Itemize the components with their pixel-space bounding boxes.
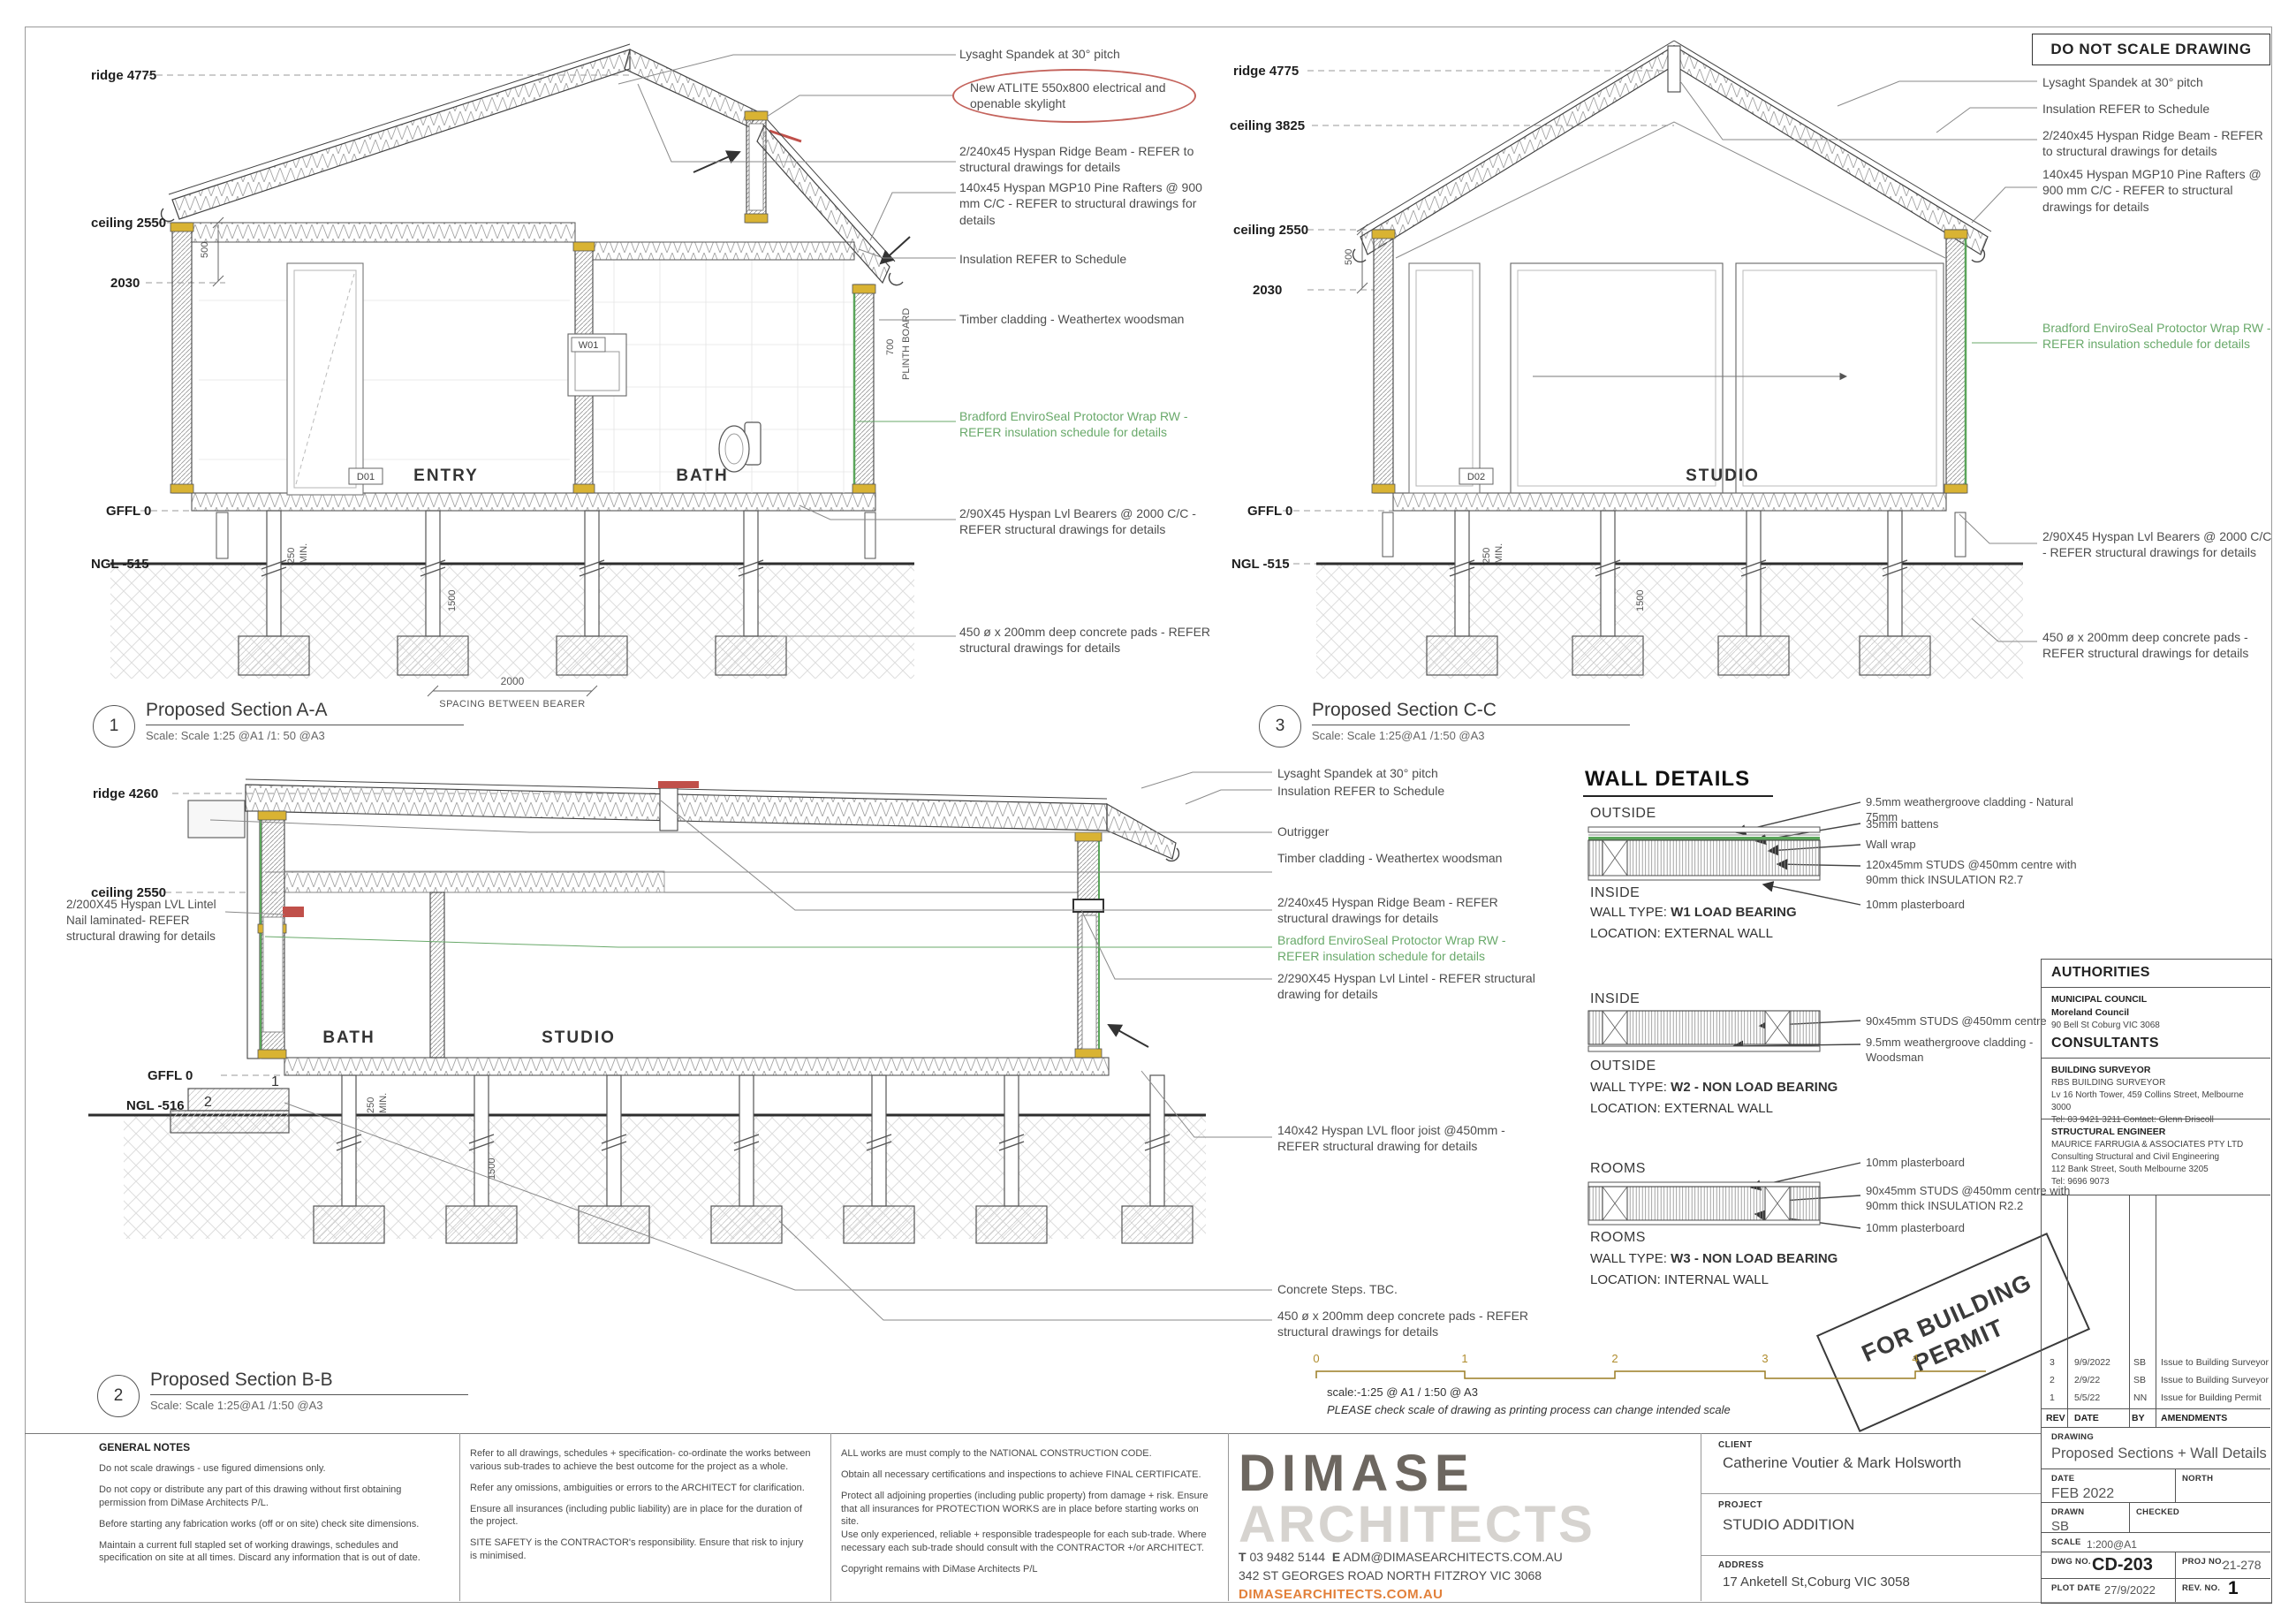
wall-type-w2: WALL TYPE: W2 - NON LOAD BEARING [1590,1080,1838,1095]
building-surveyor: BUILDING SURVEYOR RBS BUILDING SURVEYOR … [2051,1064,2262,1127]
wall-w1-diagram [1588,825,1829,882]
structural-engineer: STRUCTURAL ENGINEER MAURICE FARRUGIA & A… [2051,1126,2262,1188]
brand-contact: T 03 9482 5144 E ADM@DIMASEARCHITECTS.CO… [1239,1548,1563,1605]
section-b-title: 2 Proposed Section B-BScale: Scale 1:25@… [97,1370,468,1417]
client-name: Catherine Voutier & Mark Holsworth [1723,1454,1961,1472]
wall-w3-diagram [1588,1180,1829,1226]
callout-note: Insulation REFER to Schedule [959,251,1224,267]
section-number: 1 [93,705,135,747]
dwg-number: CD-203 [2092,1555,2153,1575]
brand-website: DIMASEARCHITECTS.COM.AU [1239,1585,1563,1605]
general-notes-col3: ALL works are must comply to the NATIONA… [841,1447,1212,1584]
wall-type-w1: WALL TYPE: W1 LOAD BEARING [1590,905,1797,920]
drawing-title: Proposed Sections + Wall Details [2051,1446,2267,1462]
wall-w2-diagram [1588,1009,1829,1053]
wall-type-w3: WALL TYPE: W3 - NON LOAD BEARING [1590,1251,1838,1266]
sheet-scale: 1:200@A1 [2087,1538,2137,1551]
graphic-scale-bar: 0 1 2 3 4 [1306,1350,2039,1385]
section-c-title: 3 Proposed Section C-CScale: Scale 1:25@… [1259,700,1630,747]
plot-date: 27/9/2022 [2104,1583,2156,1597]
drawing-date: FEB 2022 [2051,1486,2114,1502]
section-a-title: 1 Proposed Section A-AScale: Scale 1:25 … [93,700,464,747]
callout-note: 450 ø x 200mm deep concrete pads - REFER… [1277,1308,1542,1340]
rev-row: 3 [2050,1357,2055,1368]
callout-note: 140x45 Hyspan MGP10 Pine Rafters @ 900 m… [959,179,1224,228]
rev-row: 1 [2050,1393,2055,1403]
callout-note: Concrete Steps. TBC. [1277,1281,1542,1297]
callout-note: 450 ø x 200mm deep concrete pads - REFER… [959,624,1224,656]
logo-dimase: DIMASE [1239,1444,1475,1503]
consultants-heading: CONSULTANTS [2051,1036,2159,1051]
callout-note: Timber cladding - Weathertex woodsman [1277,850,1542,866]
municipal-council: MUNICIPAL COUNCIL Moreland Council 90 Be… [2051,993,2262,1032]
callout-note: 140x45 Hyspan MGP10 Pine Rafters @ 900 m… [2042,166,2272,215]
callout-note-green: Bradford EnviroSeal Protoctor Wrap RW - … [1277,932,1542,965]
proj-number: 21-278 [2223,1558,2262,1572]
svg-text:0: 0 [1313,1352,1319,1365]
skylight-revision-cloud: New ATLITE 550x800 electrical and openab… [952,69,1196,123]
callout-note: 2/290X45 Hyspan Lvl Lintel - REFER struc… [1277,970,1542,1003]
callout-note: Lysaght Spandek at 30° pitch [1277,765,1542,781]
callout-note: 2/240x45 Hyspan Ridge Beam - REFER struc… [1277,894,1542,927]
callout-note-green: Bradford EnviroSeal Protoctor Wrap RW - … [2042,320,2272,353]
rev-row: 2 [2050,1375,2055,1385]
section-number: 3 [1259,705,1301,747]
callout-note: 450 ø x 200mm deep concrete pads - REFER… [2042,629,2272,662]
callout-note-green: Bradford EnviroSeal Protoctor Wrap RW - … [959,408,1224,441]
svg-text:4: 4 [1912,1352,1918,1365]
logo-architects: ARCHITECTS [1239,1495,1595,1554]
section-number: 2 [97,1375,140,1417]
callout-note: 2/90X45 Hyspan Lvl Bearers @ 2000 C/C - … [959,505,1224,538]
callout-note: Timber cladding - Weathertex woodsman [959,311,1224,327]
svg-text:1: 1 [1461,1352,1467,1365]
wall-details-title: WALL DETAILS [1583,767,1773,797]
svg-text:3: 3 [1762,1352,1768,1365]
callout-note: Outrigger [1277,823,1542,839]
callout-note: Insulation REFER to Schedule [2042,101,2272,117]
callout-note: 2/90X45 Hyspan Lvl Bearers @ 2000 C/C - … [2042,528,2272,561]
scale-warning: PLEASE check scale of drawing as printin… [1327,1403,1731,1416]
callout-note: 2/240x45 Hyspan Ridge Beam - REFER to st… [959,143,1224,176]
project-address: 17 Anketell St,Coburg VIC 3058 [1723,1575,1910,1590]
callout-note: Insulation REFER to Schedule [1277,783,1542,799]
general-notes-col2: Refer to all drawings, schedules + speci… [470,1447,813,1571]
authorities-heading: AUTHORITIES [2051,965,2150,981]
rev-number: 1 [2228,1578,2239,1599]
callout-note: Lysaght Spandek at 30° pitch [959,46,1224,62]
svg-text:2: 2 [1611,1352,1618,1365]
callout-note: 140x42 Hyspan LVL floor joist @450mm - R… [1277,1122,1542,1155]
scale-note: scale:-1:25 @ A1 / 1:50 @ A3 [1327,1385,1478,1399]
callout-note: 2/240x45 Hyspan Ridge Beam - REFER to st… [2042,127,2272,160]
drawing-sheet: ridge 4775 ceiling 2550 500 2030 GFFL 0 … [0,0,2296,1624]
project-name: STUDIO ADDITION [1723,1516,1854,1534]
callout-note: Lysaght Spandek at 30° pitch [2042,74,2272,90]
do-not-scale-box: DO NOT SCALE DRAWING [2032,34,2270,65]
general-notes-col1: GENERAL NOTES Do not scale drawings - us… [99,1440,445,1573]
lintel-callout: 2/200X45 Hyspan LVL Lintel Nail laminate… [66,897,230,944]
